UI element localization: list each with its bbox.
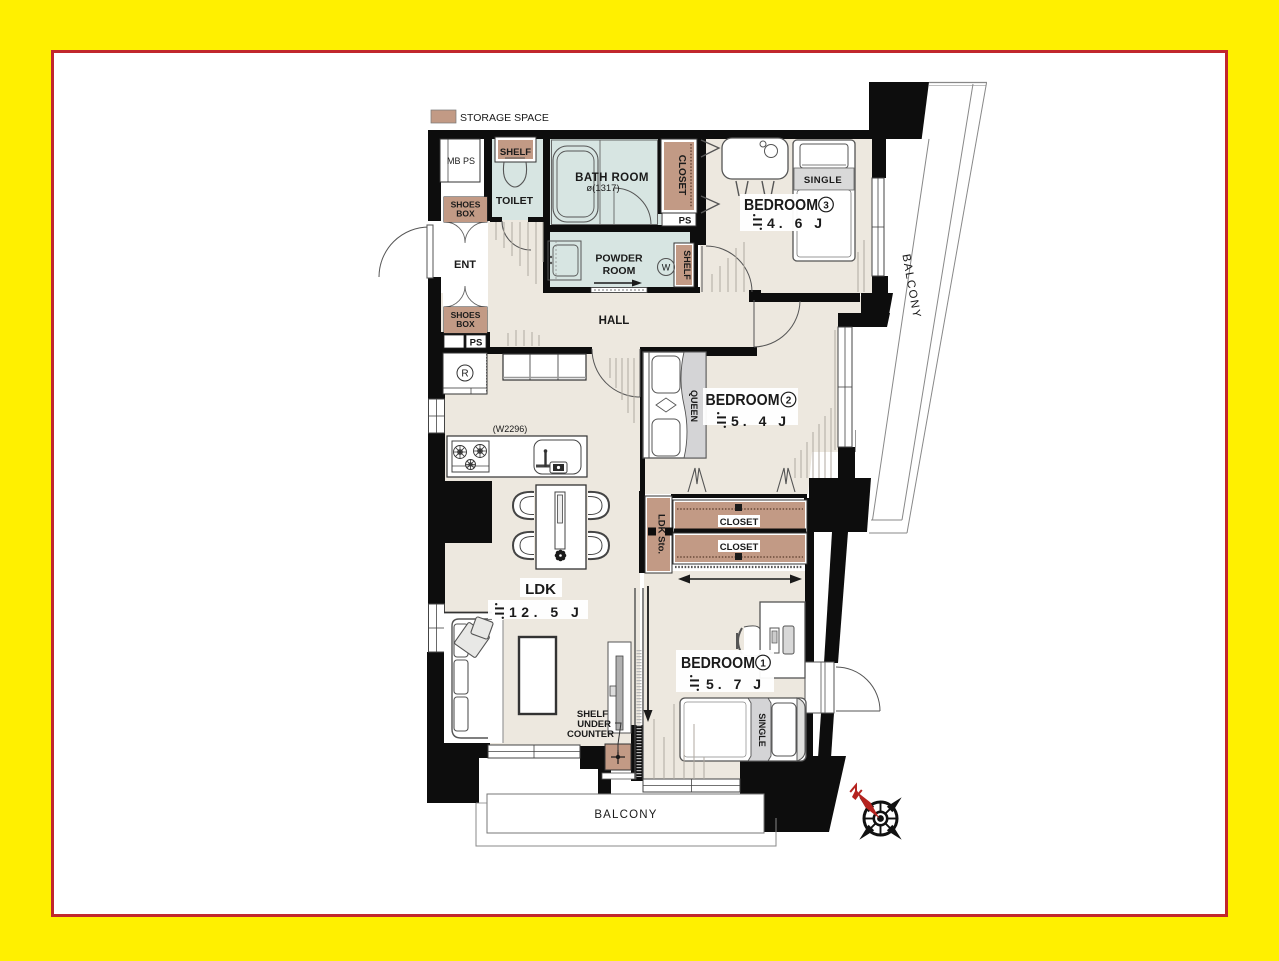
svg-text:SHELF: SHELF (500, 147, 531, 158)
svg-text:3: 3 (823, 200, 829, 211)
svg-text:PS: PS (470, 338, 483, 349)
svg-text:PS: PS (679, 216, 692, 227)
svg-text:5. 4 J: 5. 4 J (731, 413, 790, 429)
svg-text:POWDER: POWDER (595, 253, 643, 265)
svg-text:CLOSET: CLOSET (720, 542, 759, 553)
svg-text:HALL: HALL (599, 315, 630, 327)
svg-text:5. 7 J: 5. 7 J (706, 676, 765, 692)
svg-text:SINGLE: SINGLE (757, 713, 767, 747)
svg-text:SINGLE: SINGLE (804, 175, 842, 186)
svg-text:BALCONY: BALCONY (594, 809, 657, 821)
svg-text:MB PS: MB PS (447, 156, 475, 166)
svg-text:COUNTER: COUNTER (567, 729, 614, 740)
svg-text:12. 5 J: 12. 5 J (509, 604, 583, 620)
svg-text:LDK: LDK (525, 581, 556, 598)
svg-text:ø(1317): ø(1317) (586, 183, 619, 194)
svg-text:BEDROOM: BEDROOM (706, 392, 780, 409)
svg-text:STORAGE SPACE: STORAGE SPACE (460, 112, 549, 124)
svg-text:4. 6 J: 4. 6 J (767, 215, 826, 231)
svg-text:ENT: ENT (454, 259, 476, 271)
svg-text:W: W (662, 263, 671, 273)
svg-text:1: 1 (760, 658, 766, 669)
svg-text:R: R (461, 369, 468, 380)
svg-text:LDK Sto.: LDK Sto. (656, 514, 667, 554)
svg-text:BEDROOM: BEDROOM (744, 197, 818, 214)
svg-text:SHELF: SHELF (682, 250, 692, 280)
svg-text:ROOM: ROOM (603, 265, 636, 277)
svg-text:CLOSET: CLOSET (676, 155, 687, 196)
svg-text:BOX: BOX (456, 209, 475, 219)
svg-text:2: 2 (786, 395, 792, 406)
svg-text:QUEEN: QUEEN (689, 390, 699, 422)
svg-text:BEDROOM: BEDROOM (681, 655, 755, 672)
svg-text:CLOSET: CLOSET (720, 517, 759, 528)
svg-text:(W2296): (W2296) (493, 424, 528, 434)
svg-text:TOILET: TOILET (496, 195, 534, 207)
svg-text:BOX: BOX (456, 319, 475, 329)
